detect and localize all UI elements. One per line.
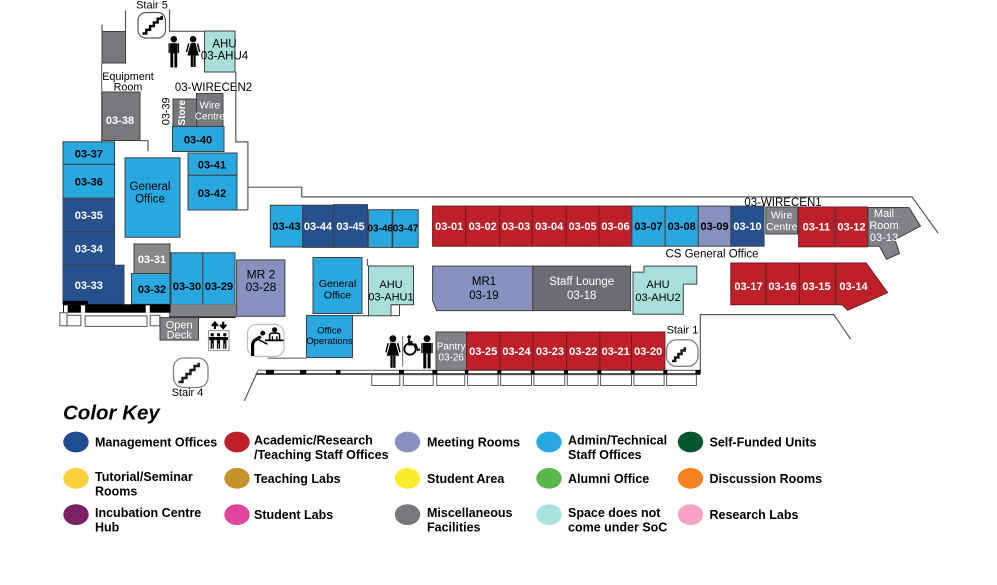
svg-text:03-AHU2: 03-AHU2	[635, 292, 680, 304]
svg-text:Hub: Hub	[95, 521, 120, 535]
svg-text:03-17: 03-17	[734, 281, 762, 293]
svg-text:03-01: 03-01	[435, 221, 463, 233]
svg-text:03-43: 03-43	[272, 221, 300, 233]
svg-text:03-30: 03-30	[173, 281, 201, 293]
svg-text:03-11: 03-11	[803, 222, 831, 234]
svg-text:03-45: 03-45	[336, 221, 364, 233]
svg-text:03-04: 03-04	[535, 221, 564, 233]
svg-text:Deck: Deck	[167, 330, 193, 342]
svg-text:AHU: AHU	[379, 279, 402, 291]
svg-text:03-10: 03-10	[733, 221, 761, 233]
svg-text:03-42: 03-42	[198, 188, 226, 200]
svg-text:Academic/Research: Academic/Research	[254, 434, 373, 448]
svg-text:Staff Offices: Staff Offices	[568, 448, 642, 462]
svg-text:Discussion Rooms: Discussion Rooms	[710, 472, 823, 486]
svg-text:03-35: 03-35	[75, 210, 103, 222]
svg-text:03-25: 03-25	[469, 346, 497, 358]
svg-text:03-23: 03-23	[536, 346, 564, 358]
svg-text:Wire: Wire	[771, 210, 793, 222]
svg-text:03-02: 03-02	[469, 221, 497, 233]
svg-text:03-18: 03-18	[567, 290, 596, 302]
svg-text:03-28: 03-28	[246, 280, 277, 294]
svg-text:03-47: 03-47	[393, 224, 419, 235]
svg-text:Admin/Technical: Admin/Technical	[568, 434, 667, 448]
svg-text:03-14: 03-14	[839, 281, 868, 293]
svg-text:03-29: 03-29	[205, 281, 233, 293]
svg-text:Management Offices: Management Offices	[95, 436, 217, 450]
svg-text:Centre: Centre	[766, 221, 798, 233]
svg-text:AHU: AHU	[646, 279, 669, 291]
svg-text:Teaching Labs: Teaching Labs	[254, 472, 341, 486]
svg-text:03-37: 03-37	[75, 148, 103, 160]
svg-text:03-03: 03-03	[502, 221, 530, 233]
svg-text:03-AHU4: 03-AHU4	[201, 51, 249, 63]
svg-text:03-46: 03-46	[368, 224, 394, 235]
svg-text:03-33: 03-33	[75, 280, 103, 292]
svg-text:Incubation Centre: Incubation Centre	[95, 506, 201, 520]
svg-text:Facilities: Facilities	[427, 521, 481, 535]
svg-text:03-44: 03-44	[304, 221, 333, 233]
svg-text:Stair 4: Stair 4	[172, 387, 204, 399]
svg-text:03-38: 03-38	[106, 115, 134, 127]
svg-text:03-40: 03-40	[184, 135, 212, 147]
svg-text:Tutorial/Seminar: Tutorial/Seminar	[95, 470, 193, 484]
svg-text:03-20: 03-20	[634, 346, 662, 358]
svg-text:03-26: 03-26	[438, 353, 464, 364]
svg-text:03-13: 03-13	[870, 232, 898, 244]
svg-text:Research Labs: Research Labs	[710, 508, 799, 522]
svg-text:03-41: 03-41	[198, 160, 226, 172]
svg-text:03-21: 03-21	[602, 346, 630, 358]
svg-text:MR1: MR1	[472, 276, 496, 288]
svg-text:Operations: Operations	[306, 336, 353, 347]
svg-text:Color Key: Color Key	[63, 402, 161, 425]
svg-text:03-WIRECEN2: 03-WIRECEN2	[175, 82, 252, 94]
svg-text:03-16: 03-16	[768, 281, 796, 293]
svg-text:General: General	[130, 181, 171, 193]
svg-text:/Teaching Staff Offices: /Teaching Staff Offices	[254, 448, 389, 462]
svg-text:03-32: 03-32	[138, 284, 166, 296]
svg-text:Rooms: Rooms	[95, 485, 137, 499]
svg-text:Office: Office	[135, 194, 165, 206]
svg-text:Space does not: Space does not	[568, 506, 661, 520]
svg-text:AHU: AHU	[212, 39, 236, 51]
svg-text:Student Area: Student Area	[427, 472, 505, 486]
svg-text:03-34: 03-34	[75, 244, 104, 256]
svg-text:03-08: 03-08	[668, 221, 696, 233]
svg-text:03-39: 03-39	[160, 97, 172, 125]
svg-text:General: General	[319, 278, 356, 290]
svg-text:03-06: 03-06	[601, 221, 629, 233]
svg-text:03-15: 03-15	[802, 281, 830, 293]
svg-text:CS General Office: CS General Office	[665, 249, 758, 261]
svg-text:Alumni Office: Alumni Office	[568, 472, 649, 486]
svg-text:Self-Funded Units: Self-Funded Units	[710, 436, 817, 450]
svg-text:Room: Room	[869, 220, 898, 232]
svg-text:Pantry: Pantry	[437, 342, 466, 353]
svg-text:Store: Store	[177, 99, 188, 125]
svg-text:Centre: Centre	[195, 112, 225, 123]
svg-text:Stair 1: Stair 1	[667, 325, 699, 337]
svg-text:03-12: 03-12	[837, 222, 865, 234]
svg-text:come under SoC: come under SoC	[568, 521, 667, 535]
svg-text:Wire: Wire	[200, 101, 221, 112]
svg-text:03-AHU1: 03-AHU1	[368, 292, 413, 304]
svg-text:03-24: 03-24	[502, 346, 531, 358]
svg-text:Miscellaneous: Miscellaneous	[427, 506, 512, 520]
svg-text:Staff Lounge: Staff Lounge	[549, 276, 614, 288]
svg-text:Student Labs: Student Labs	[254, 508, 333, 522]
svg-text:Office: Office	[317, 326, 342, 337]
svg-text:Meeting Rooms: Meeting Rooms	[427, 436, 520, 450]
svg-text:03-WIRECEN1: 03-WIRECEN1	[744, 197, 821, 209]
svg-text:03-22: 03-22	[569, 346, 597, 358]
svg-text:03-05: 03-05	[569, 221, 597, 233]
svg-text:03-07: 03-07	[634, 221, 662, 233]
svg-text:03-31: 03-31	[138, 254, 166, 266]
svg-text:03-19: 03-19	[469, 290, 498, 302]
svg-text:Stair 5: Stair 5	[136, 0, 168, 12]
svg-text:Mail: Mail	[874, 208, 894, 220]
svg-text:03-36: 03-36	[75, 177, 103, 189]
svg-text:03-09: 03-09	[701, 221, 729, 233]
svg-text:Office: Office	[324, 290, 351, 302]
